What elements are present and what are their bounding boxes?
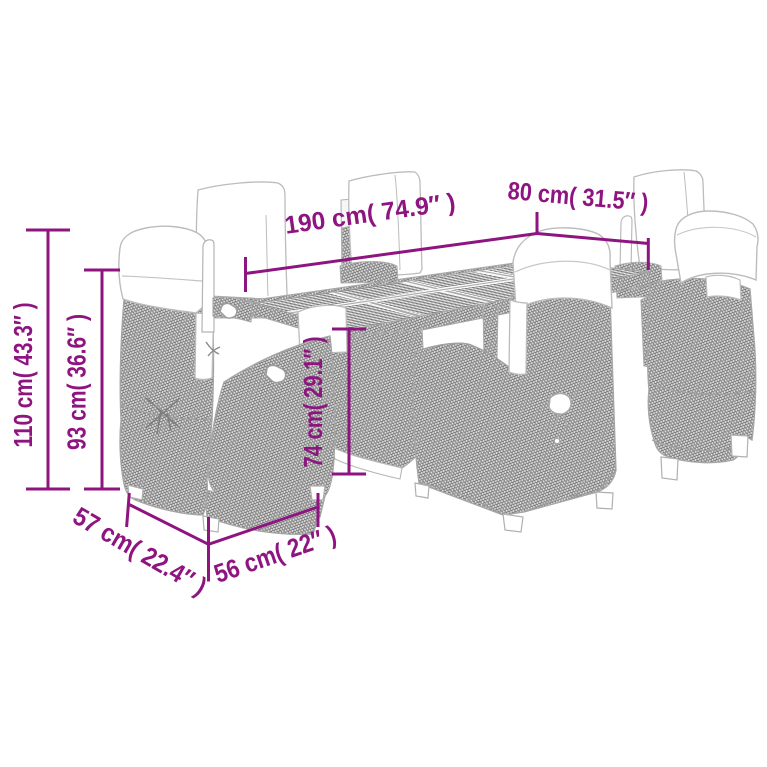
svg-text:74 cm( 29.1″ ): 74 cm( 29.1″ ) <box>298 337 328 468</box>
svg-text:110 cm( 43.3″ ): 110 cm( 43.3″ ) <box>8 303 38 448</box>
svg-text:93 cm( 36.6″ ): 93 cm( 36.6″ ) <box>62 314 92 450</box>
